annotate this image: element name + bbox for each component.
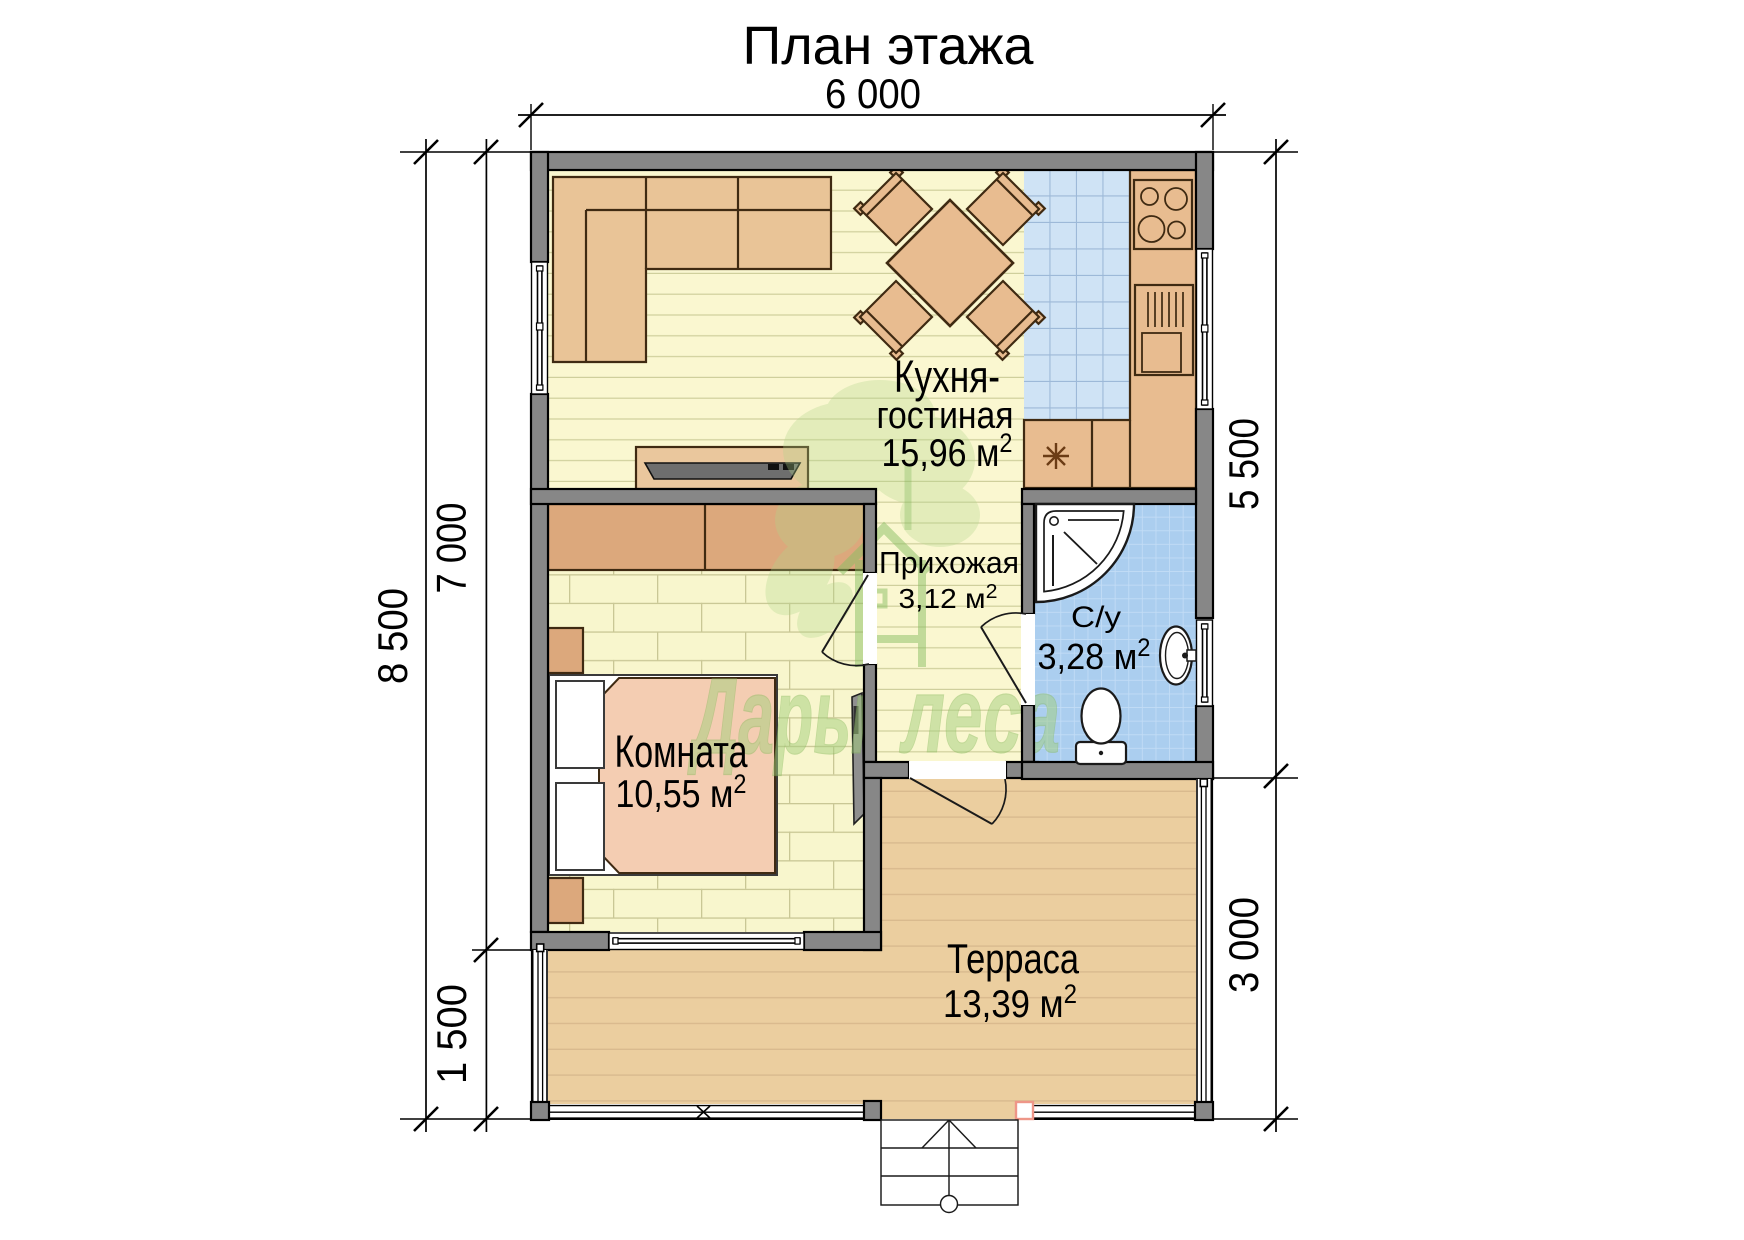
svg-text:8 500: 8 500 <box>369 588 416 684</box>
svg-text:6 000: 6 000 <box>825 70 921 117</box>
svg-text:Комната: Комната <box>615 726 749 777</box>
svg-text:Терраса: Терраса <box>947 935 1080 982</box>
svg-text:гостиная: гостиная <box>877 395 1014 437</box>
svg-text:План этажа: План этажа <box>743 16 1035 76</box>
svg-text:С/у: С/у <box>1071 601 1121 634</box>
svg-text:15,96 м2: 15,96 м2 <box>882 428 1013 475</box>
svg-text:5 500: 5 500 <box>1220 418 1267 510</box>
svg-text:1 500: 1 500 <box>428 984 475 1084</box>
svg-text:13,39 м2: 13,39 м2 <box>943 979 1077 1026</box>
svg-text:3,28 м2: 3,28 м2 <box>1038 634 1151 677</box>
svg-text:7 000: 7 000 <box>428 503 475 594</box>
svg-text:3 000: 3 000 <box>1220 897 1267 993</box>
svg-text:3,12 м2: 3,12 м2 <box>899 581 998 614</box>
svg-text:леса: леса <box>899 654 1060 775</box>
svg-text:Прихожая: Прихожая <box>879 545 1019 580</box>
svg-text:10,55 м2: 10,55 м2 <box>616 769 747 816</box>
